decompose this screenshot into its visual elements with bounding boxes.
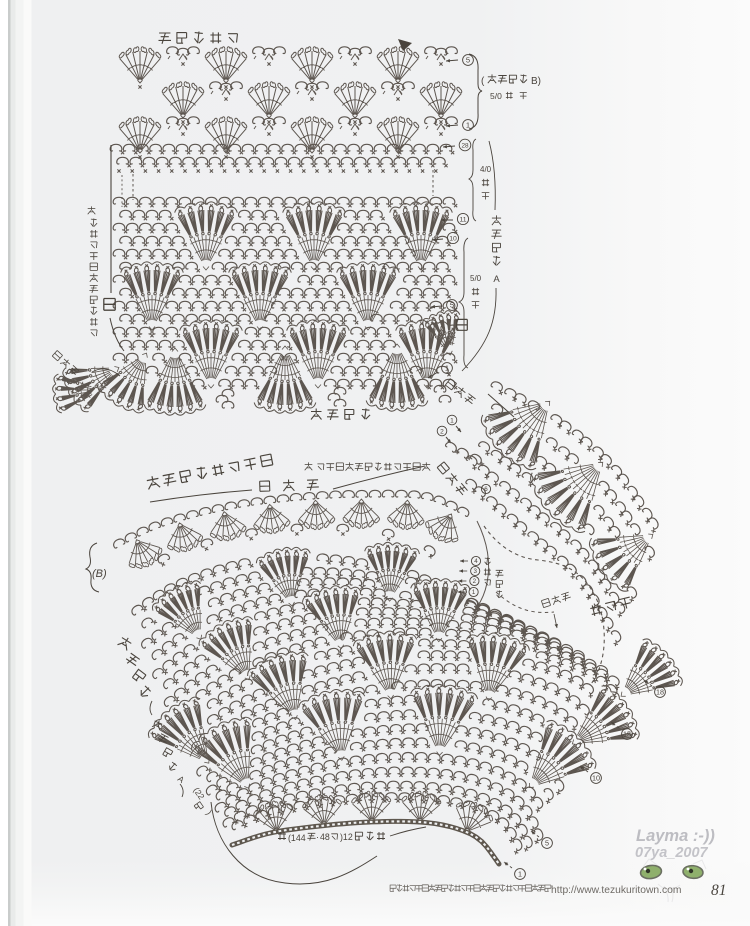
svg-text:4: 4 [474,558,478,565]
svg-text:A: A [493,274,500,285]
svg-text:28: 28 [461,142,469,149]
svg-text:Layma :-)): Layma :-)) [636,827,715,845]
svg-text:2: 2 [473,578,477,585]
svg-text:5/0: 5/0 [470,274,482,283]
svg-text:07ya_2007: 07ya_2007 [635,845,709,861]
svg-text:1: 1 [518,870,522,879]
svg-text:6: 6 [484,486,488,493]
svg-text:B): B) [531,76,541,87]
svg-text:5/0: 5/0 [490,91,502,101]
svg-text:·: · [316,832,319,842]
svg-text:81: 81 [711,882,727,899]
svg-text:5: 5 [466,56,470,65]
svg-text:11: 11 [459,216,466,223]
svg-text:10: 10 [592,774,600,783]
svg-text:5: 5 [545,839,549,848]
svg-text:15: 15 [623,730,631,739]
svg-text:4/0: 4/0 [480,165,492,174]
svg-text:2: 2 [440,428,444,435]
svg-text:1: 1 [472,589,476,596]
svg-text:48: 48 [320,832,330,842]
svg-text:http://www.tezukuritown.com: http://www.tezukuritown.com [551,885,681,896]
svg-text:5: 5 [450,301,454,310]
svg-text:10: 10 [449,235,457,242]
svg-text:(144: (144 [288,833,306,843]
svg-text:(B): (B) [92,568,107,580]
svg-text:1: 1 [445,364,449,373]
svg-text:18: 18 [656,688,664,697]
svg-text:)12: )12 [340,832,353,842]
svg-text:3: 3 [473,568,477,575]
svg-text:1: 1 [450,417,454,424]
svg-text:1: 1 [466,121,470,130]
